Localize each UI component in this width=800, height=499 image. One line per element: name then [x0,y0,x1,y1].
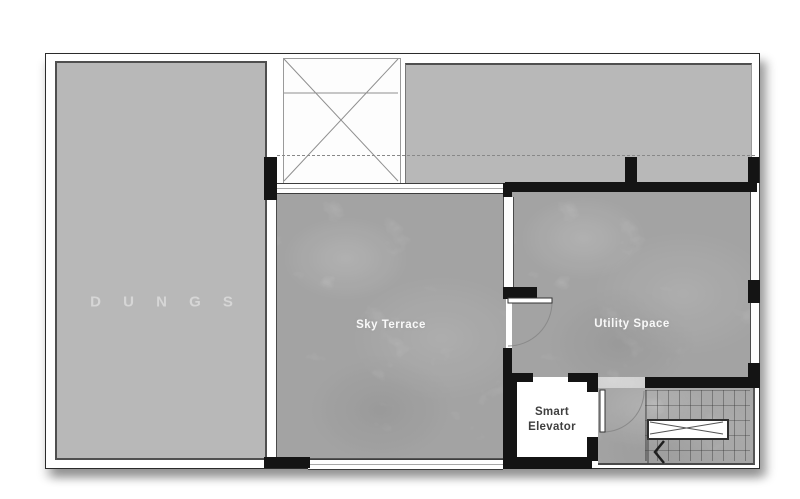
wall-segment [748,280,760,303]
wall-segment [503,183,512,197]
terrace-window-bottom [308,459,503,470]
wall-segment [264,457,310,468]
wall-segment [625,157,637,183]
room-utility-space [512,192,750,377]
wall-segment [503,348,512,373]
watermark-text: D U N G S [90,294,242,311]
skylight-shaft [283,58,401,184]
sky-terrace-label: Sky Terrace [356,319,426,331]
stair-landing-marker [647,419,729,440]
roof-deck-left [55,61,267,460]
wall-segment [503,287,537,299]
floor-plan-page: Smart Elevator Sky Terrac [0,0,800,499]
wall-terrace-utility-thin [503,197,514,287]
elevator-wall-left [503,373,517,469]
smart-elevator-label-line1: Smart [535,405,569,419]
elevator-wall-top [568,373,598,382]
elevator-wall-bottom [510,457,592,469]
smart-elevator-label-line2: Elevator [528,420,576,434]
terrace-window-top [276,183,505,194]
roof-overhang-dashed-line [277,155,755,156]
wall-segment [645,377,757,388]
room-smart-elevator: Smart Elevator [517,382,587,457]
utility-space-label: Utility Space [594,318,670,330]
concrete-texture [512,192,750,377]
wall-segment [505,182,757,192]
wall-segment [748,157,759,183]
elevator-wall-right [587,382,598,392]
roof-deck-right [405,63,752,184]
wall-segment [264,157,277,200]
elevator-wall-top [517,373,533,382]
